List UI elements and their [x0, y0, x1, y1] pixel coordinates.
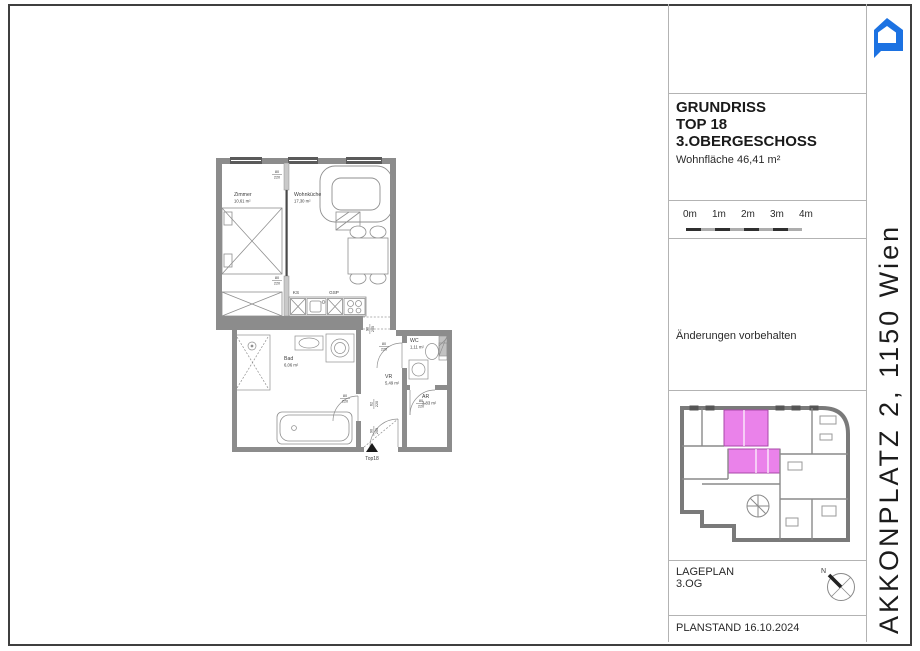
notes-text: Änderungen vorbehalten — [676, 330, 796, 342]
svg-text:220: 220 — [418, 405, 424, 409]
north-label: N — [821, 568, 826, 575]
svg-text:220: 220 — [274, 176, 280, 180]
bathtub-icon — [277, 412, 352, 444]
svg-text:220: 220 — [342, 400, 348, 404]
door-swings — [333, 343, 435, 447]
svg-text:90: 90 — [366, 327, 370, 331]
svg-text:80: 80 — [382, 342, 386, 346]
site-highlight-top18 — [724, 410, 780, 473]
lageplan-caption: LAGEPLAN 3.OG — [676, 566, 734, 590]
room-area-zimmer: 10,61 m² — [234, 199, 251, 204]
divider-map-bottom — [669, 560, 866, 561]
title-top18: TOP 18 — [676, 116, 858, 133]
washing-machine-icon — [326, 334, 354, 362]
kitchen-counter — [289, 297, 366, 316]
sofa-icon — [320, 166, 392, 222]
room-label-bad: Bad — [284, 356, 293, 362]
scale-tick-0: 0m — [683, 209, 697, 220]
area-total-label: Wohnfläche 46,41 m² — [676, 154, 858, 166]
svg-text:205: 205 — [371, 326, 375, 332]
entrance-label: Top18 — [365, 456, 379, 462]
divider-notes-bottom — [669, 390, 866, 391]
site-stair-icon — [747, 495, 769, 517]
scale-tick-3: 3m — [770, 209, 784, 220]
dining-set-icon — [348, 226, 388, 284]
window-icons — [230, 157, 382, 164]
shower-icon — [235, 335, 270, 390]
svg-text:80: 80 — [419, 399, 423, 403]
site-plan-map — [672, 394, 862, 554]
svg-text:80: 80 — [275, 276, 279, 280]
room-label-zimmer: Zimmer — [234, 192, 252, 198]
scale-bar-segments — [686, 228, 802, 231]
room-label-vr: VR — [385, 374, 392, 380]
wc-basin-icon — [409, 360, 428, 379]
room-area-wohnkueche: 17,30 m² — [294, 199, 311, 204]
bed-icon — [222, 208, 282, 274]
label-gsp: GSP — [329, 290, 339, 295]
title-grundriss: GRUNDRISS — [676, 99, 858, 116]
scale-tick-2: 2m — [741, 209, 755, 220]
divider-scale-bottom — [669, 238, 866, 239]
svg-text:80: 80 — [343, 394, 347, 398]
entrance-marker: Top18 — [365, 443, 379, 462]
divider-lageplan-bottom — [669, 615, 866, 616]
svg-text:220: 220 — [381, 348, 387, 352]
washbasin-icon — [295, 336, 323, 350]
plan-status-text: PLANSTAND 16.10.2024 — [676, 622, 799, 634]
room-area-ar: 3,83 m² — [422, 401, 437, 406]
shaft-hatch — [439, 336, 447, 356]
title-block: GRUNDRISS TOP 18 3.OBERGESCHOSS Wohnfläc… — [676, 99, 858, 166]
divider-address-column — [866, 4, 867, 642]
plan-sheet: Top18 Zimmer 10,61 m² Wohnküche 17,30 m²… — [0, 0, 920, 651]
room-area-wc: 1,11 m² — [410, 345, 424, 350]
room-label-wohnkueche: Wohnküche — [294, 192, 321, 198]
title-geschoss: 3.OBERGESCHOSS — [676, 133, 858, 150]
scale-tick-4: 4m — [799, 209, 813, 220]
svg-text:62: 62 — [370, 402, 374, 406]
svg-text:220: 220 — [375, 401, 379, 407]
site-fixtures — [786, 416, 836, 526]
room-area-vr: 5,49 m² — [385, 381, 400, 386]
scale-bar: 0m 1m 2m 3m 4m — [668, 200, 866, 238]
divider-info-column — [668, 4, 669, 642]
house-logo-icon — [869, 16, 905, 60]
address-vertical-label: AKKONPLATZ 2, 1150 Wien — [874, 224, 905, 634]
scale-tick-1: 1m — [712, 209, 726, 220]
label-ks: KS — [293, 290, 299, 295]
lageplan-label: LAGEPLAN — [676, 566, 734, 578]
svg-text:220: 220 — [274, 282, 280, 286]
svg-text:205: 205 — [375, 428, 379, 434]
svg-text:90: 90 — [370, 429, 374, 433]
room-area-bad: 6,06 m² — [284, 363, 299, 368]
north-arrow-icon: N — [818, 563, 862, 607]
svg-text:80: 80 — [275, 170, 279, 174]
divider-title-top — [669, 93, 866, 94]
room-label-wc: WC — [410, 338, 419, 344]
lageplan-floor: 3.OG — [676, 578, 734, 590]
wardrobe-icon — [222, 292, 282, 316]
walls-upper — [216, 158, 452, 336]
apartment-floor-plan: Top18 Zimmer 10,61 m² Wohnküche 17,30 m²… — [206, 146, 458, 476]
partition-sliding-door — [284, 163, 289, 316]
